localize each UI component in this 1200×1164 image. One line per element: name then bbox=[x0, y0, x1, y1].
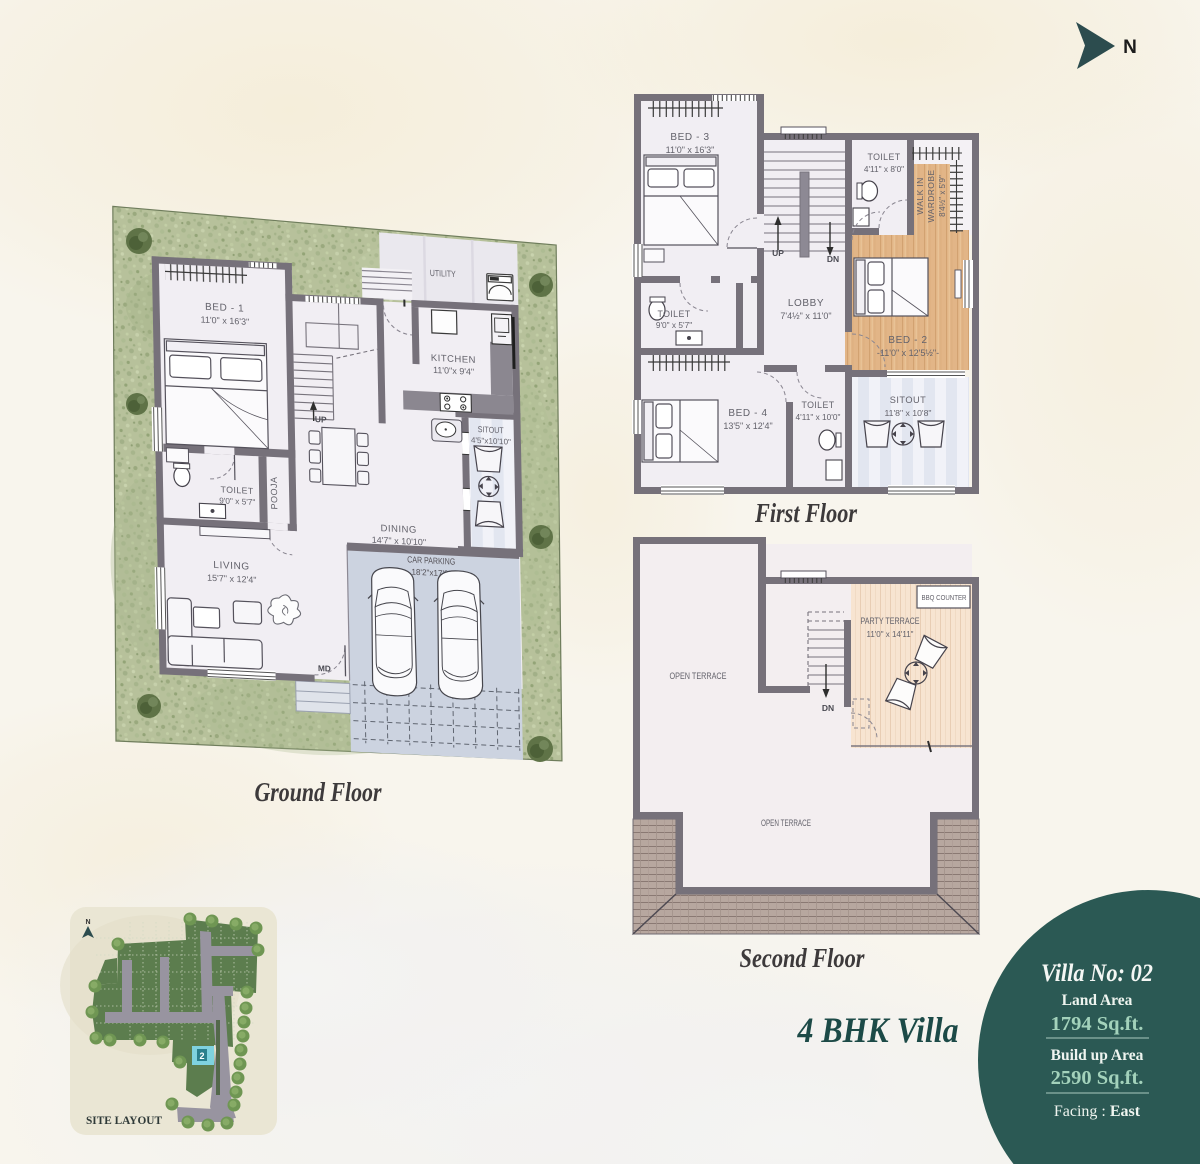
svg-text:Villa No: 02: Villa No: 02 bbox=[1041, 960, 1153, 987]
svg-text:PARTY TERRACE: PARTY TERRACE bbox=[861, 616, 920, 626]
svg-text:WARDROBE: WARDROBE bbox=[926, 170, 936, 223]
svg-text:TOILET: TOILET bbox=[220, 484, 253, 496]
svg-text:11'0" x 14'11": 11'0" x 14'11" bbox=[867, 629, 914, 639]
svg-text:BED - 3: BED - 3 bbox=[670, 132, 709, 143]
svg-text:4 BHK Villa: 4 BHK Villa bbox=[797, 1010, 959, 1050]
svg-text:OPEN TERRACE: OPEN TERRACE bbox=[761, 818, 811, 828]
svg-text:BBQ COUNTER: BBQ COUNTER bbox=[922, 593, 967, 602]
svg-text:POOJA: POOJA bbox=[269, 476, 280, 509]
svg-text:1794 Sq.ft.: 1794 Sq.ft. bbox=[1051, 1013, 1144, 1035]
svg-text:TOILET: TOILET bbox=[657, 309, 690, 319]
svg-text:BED - 2: BED - 2 bbox=[888, 335, 927, 346]
svg-text:WALK IN: WALK IN bbox=[915, 177, 925, 214]
svg-text:KITCHEN: KITCHEN bbox=[431, 353, 476, 366]
svg-text:SITE LAYOUT: SITE LAYOUT bbox=[86, 1113, 162, 1127]
svg-text:2: 2 bbox=[199, 1051, 204, 1061]
svg-text:8'4½" x 5'9": 8'4½" x 5'9" bbox=[938, 175, 947, 217]
svg-text:-11'0" x 12'5½"-: -11'0" x 12'5½"- bbox=[877, 348, 939, 358]
svg-text:LIVING: LIVING bbox=[213, 560, 250, 573]
svg-text:11'0" x 16'3": 11'0" x 16'3" bbox=[666, 145, 715, 155]
svg-text:SITOUT: SITOUT bbox=[478, 424, 504, 435]
svg-text:11'0"x 9'4": 11'0"x 9'4" bbox=[433, 365, 474, 377]
svg-text:TOILET: TOILET bbox=[801, 400, 834, 410]
svg-text:Second Floor: Second Floor bbox=[740, 943, 865, 973]
svg-text:N: N bbox=[85, 919, 90, 926]
svg-text:Ground Floor: Ground Floor bbox=[255, 777, 382, 807]
svg-text:UTILITY: UTILITY bbox=[430, 268, 456, 279]
svg-text:4'11" x 10'0": 4'11" x 10'0" bbox=[796, 412, 841, 422]
svg-text:UP: UP bbox=[772, 248, 784, 258]
svg-text:DN: DN bbox=[827, 254, 839, 264]
svg-text:DINING: DINING bbox=[380, 523, 416, 536]
svg-text:4'11" x 8'0": 4'11" x 8'0" bbox=[864, 164, 904, 174]
svg-text:N: N bbox=[1123, 37, 1137, 58]
svg-text:2590 Sq.ft.: 2590 Sq.ft. bbox=[1051, 1067, 1144, 1089]
svg-text:MD: MD bbox=[318, 663, 331, 674]
svg-text:13'5" x 12'4": 13'5" x 12'4" bbox=[723, 421, 772, 431]
svg-text:BED - 4: BED - 4 bbox=[728, 408, 767, 419]
svg-text:Facing : East: Facing : East bbox=[1054, 1103, 1141, 1120]
svg-text:9'0" x 5'7": 9'0" x 5'7" bbox=[656, 320, 692, 330]
svg-text:Land Area: Land Area bbox=[1062, 992, 1133, 1009]
svg-text:DN: DN bbox=[822, 703, 834, 713]
svg-text:OPEN TERRACE: OPEN TERRACE bbox=[670, 671, 727, 681]
svg-text:Build up Area: Build up Area bbox=[1051, 1047, 1144, 1064]
svg-text:LOBBY: LOBBY bbox=[788, 298, 824, 309]
svg-text:11'8" x 10'8": 11'8" x 10'8" bbox=[885, 408, 932, 418]
svg-text:SITOUT: SITOUT bbox=[890, 395, 927, 405]
svg-text:BED - 1: BED - 1 bbox=[205, 302, 244, 315]
svg-text:7'4½" x 11'0": 7'4½" x 11'0" bbox=[780, 311, 831, 321]
svg-text:First Floor: First Floor bbox=[754, 498, 857, 528]
svg-text:UP: UP bbox=[315, 414, 327, 425]
svg-text:TOILET: TOILET bbox=[867, 152, 900, 162]
